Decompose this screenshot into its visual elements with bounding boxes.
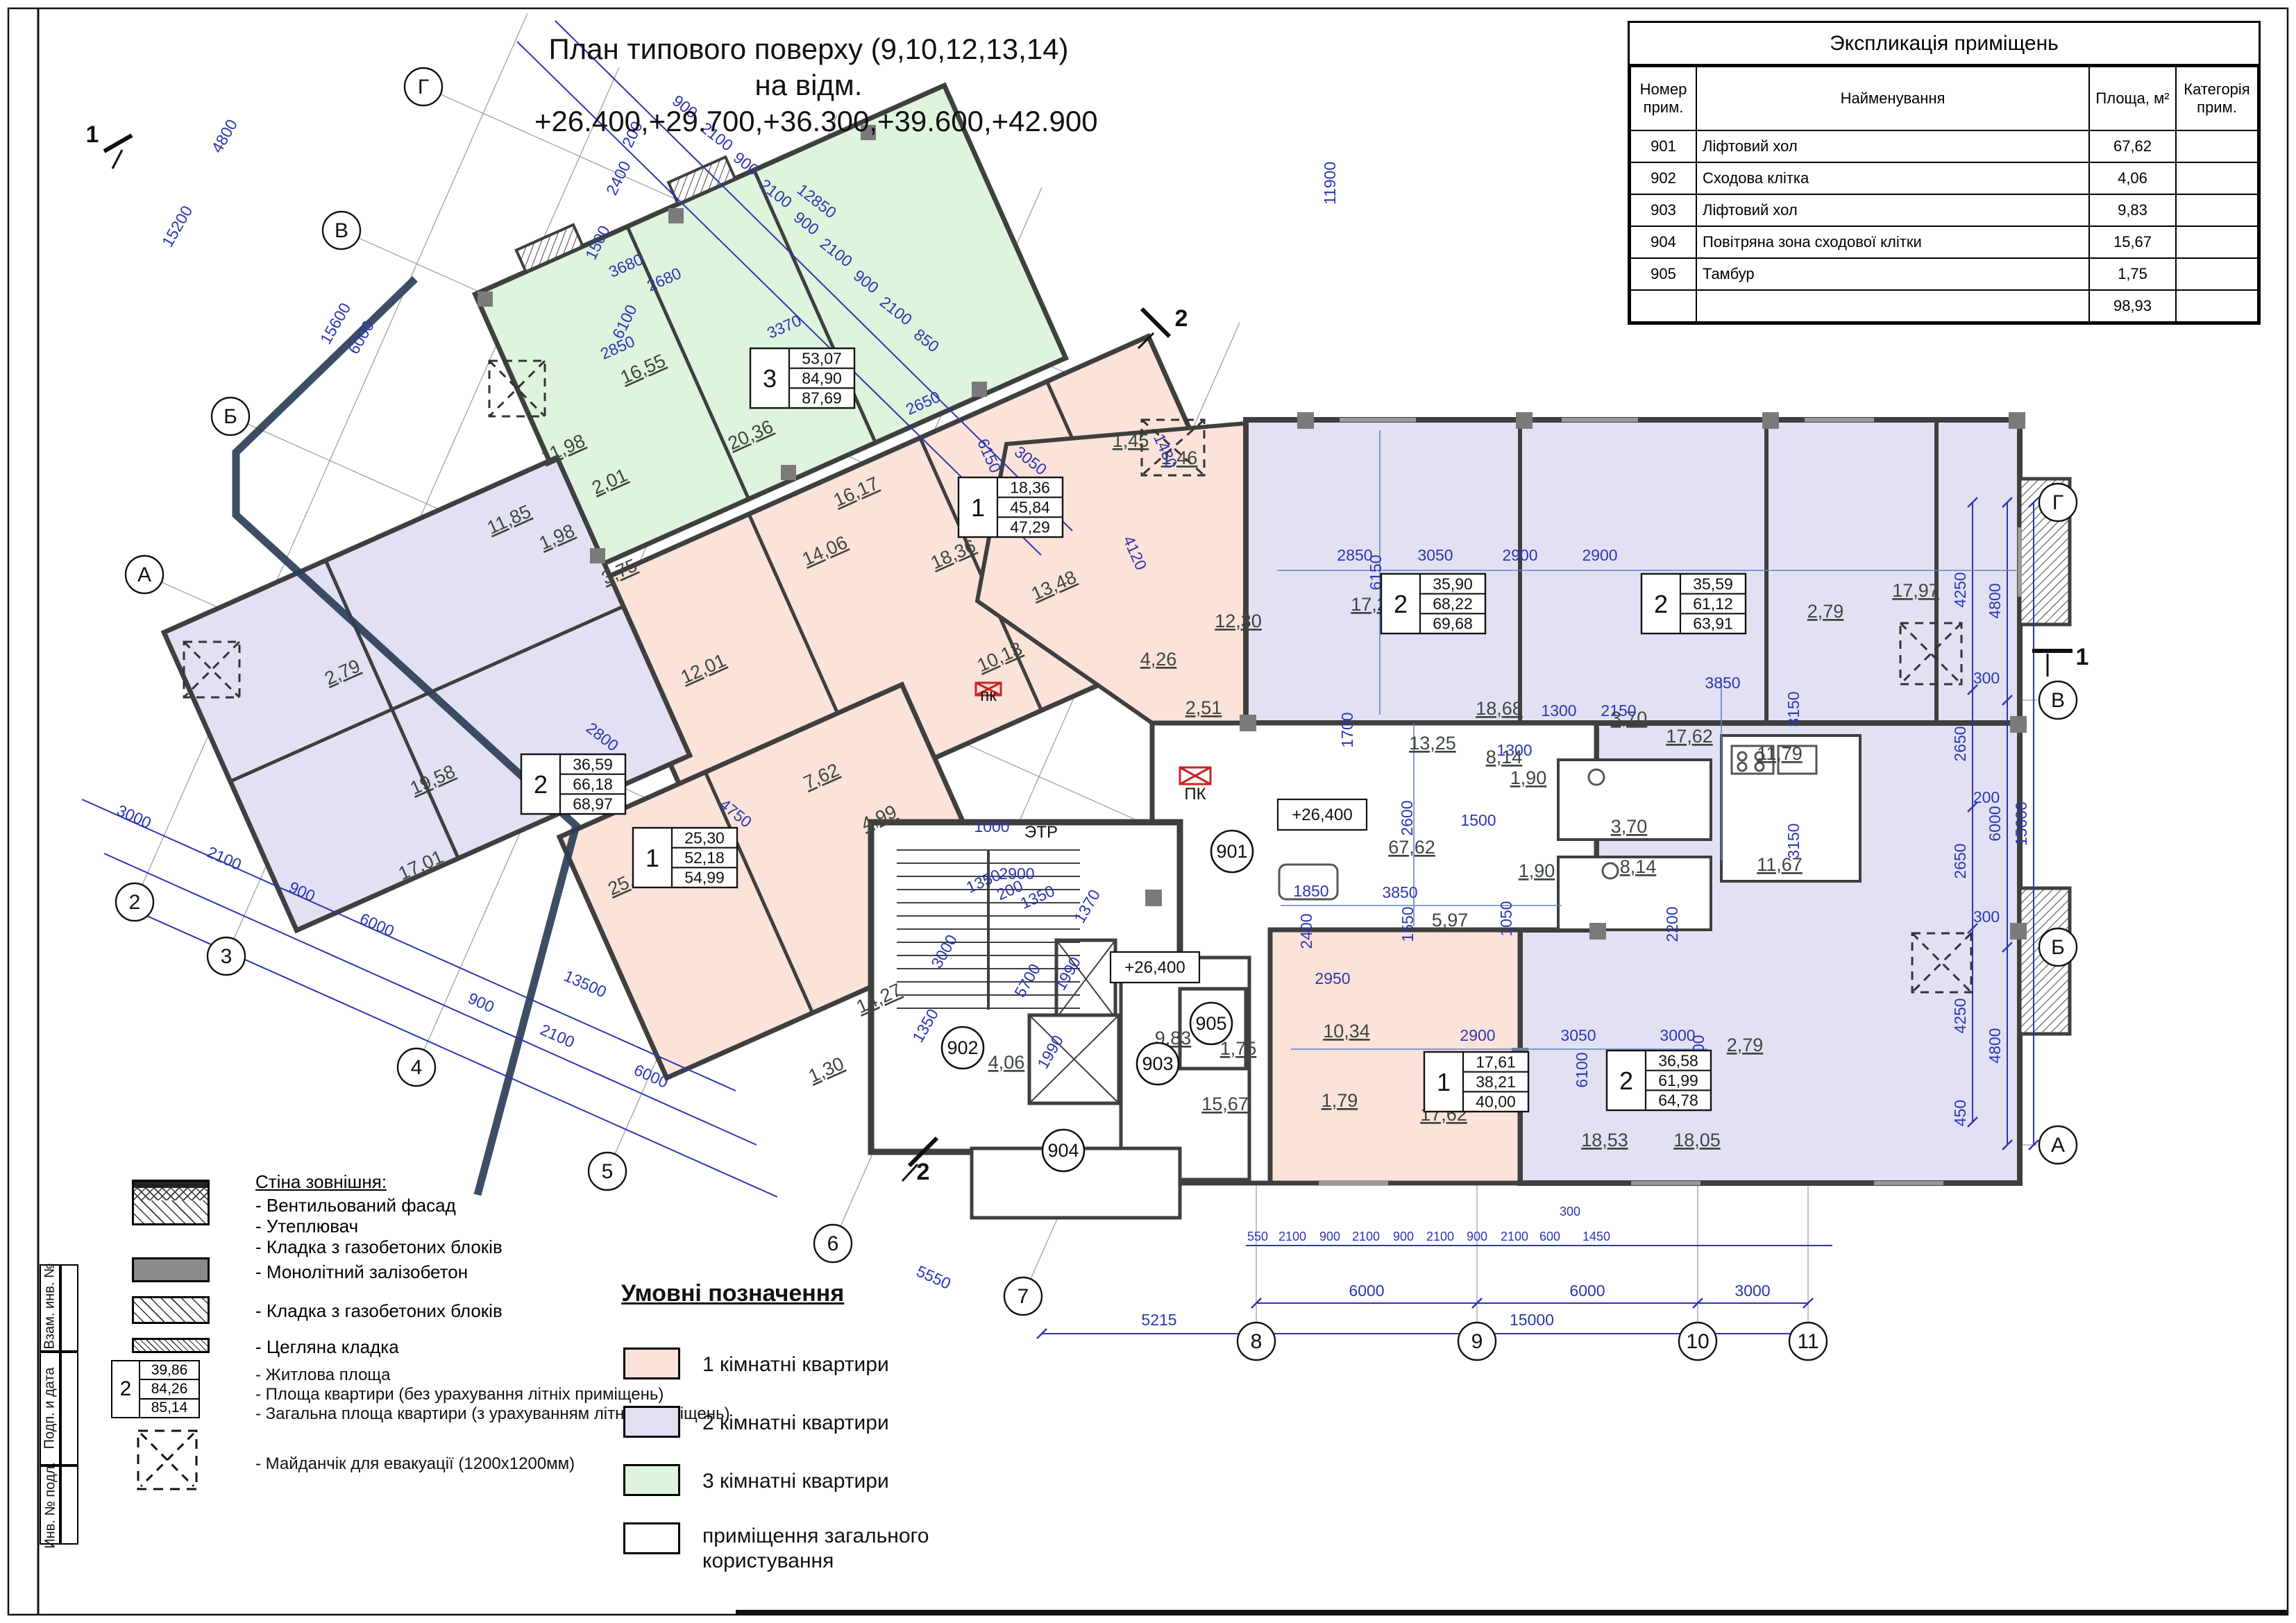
dimension-label: 4800 — [208, 116, 241, 155]
svg-text:64,78: 64,78 — [1658, 1091, 1698, 1110]
svg-text:+26,400: +26,400 — [1292, 806, 1352, 824]
dimension-label: 600 — [1539, 1230, 1560, 1243]
elevation-mark: +26,400 — [1111, 952, 1199, 983]
dimension-label: 1850 — [1293, 882, 1328, 900]
room-area-label: 3,70 — [1611, 816, 1648, 837]
table-header-row: Номер прим. Найменування Площа, м² Катег… — [1630, 67, 2258, 130]
svg-text:Б: Б — [2051, 936, 2065, 959]
dimension-label: 3850 — [1382, 883, 1417, 901]
dimension-label: 900 — [1393, 1230, 1414, 1243]
dimension-label: 550 — [1247, 1230, 1268, 1243]
room-name: Ліфтовий хол — [1696, 194, 2089, 226]
plan-text-label: ЭТР — [1024, 823, 1058, 842]
dimension-label: 2100 — [1352, 1230, 1380, 1243]
col-area: Площа, м² — [2089, 67, 2176, 130]
room-category — [2176, 226, 2258, 258]
dimension-label: 2400 — [1297, 913, 1315, 949]
svg-text:68,97: 68,97 — [573, 795, 613, 813]
table-row: 904Повітряна зона сходової клітки15,67 — [1630, 226, 2258, 258]
dimension-label: 2950 — [1315, 969, 1350, 987]
room-category — [2176, 162, 2258, 194]
dimension-label: 15600 — [2012, 801, 2030, 846]
apartment-tag: 236,5966,1868,97 — [521, 754, 625, 814]
dimension-label: 2900 — [999, 865, 1034, 883]
drawing-title: План типового поверху (9,10,12,13,14) на… — [534, 31, 1083, 139]
svg-text:А: А — [2051, 1134, 2065, 1157]
dimension-label: 15000 — [1510, 1311, 1554, 1329]
dimension-label: 1450 — [1582, 1230, 1610, 1243]
area-tag-sample: 2 39,86 84,26 85,14 — [111, 1360, 200, 1418]
legend-item: 1 кімнатні квартири — [702, 1353, 889, 1377]
svg-text:10: 10 — [1686, 1330, 1709, 1353]
room-area-label: 2,51 — [1185, 697, 1222, 718]
room-area-label: 1,90 — [1510, 767, 1547, 788]
dimension-label: 4250 — [1951, 998, 1969, 1033]
table-total-row: 98,93 — [1630, 290, 2258, 322]
apartment-tag: 353,0784,9087,69 — [750, 348, 854, 408]
room-area-label: 13,25 — [1409, 733, 1456, 754]
swatch-1room — [623, 1348, 680, 1379]
dimension-label: 2100 — [1426, 1230, 1454, 1243]
dimension-label: 2200 — [1663, 906, 1681, 942]
svg-text:8: 8 — [1251, 1330, 1263, 1353]
room-area-label: 11,79 — [1757, 743, 1803, 764]
svg-text:61,12: 61,12 — [1693, 595, 1733, 613]
apartment-tag: 118,3645,8447,29 — [959, 477, 1063, 537]
axis-bubble: Г — [405, 68, 442, 105]
dimension-label: 3050 — [1560, 1026, 1596, 1044]
plan-text-label: пк — [980, 686, 997, 705]
section-number: 2 — [1175, 305, 1188, 332]
room-area-label: 10,34 — [1323, 1021, 1370, 1042]
axis-bubble: 8 — [1238, 1323, 1275, 1360]
dimension-label: 2100 — [538, 1020, 577, 1051]
axis-bubble: А — [126, 556, 163, 593]
dimension-label: 2150 — [1601, 702, 1636, 720]
svg-text:18,36: 18,36 — [1010, 478, 1050, 496]
swatch-2room — [623, 1406, 680, 1438]
legend-item: - Площа квартири (без урахування літніх … — [255, 1385, 664, 1404]
svg-text:901: 901 — [1216, 841, 1247, 862]
room-area-label: 2,79 — [1727, 1035, 1764, 1055]
axis-bubble: 9 — [1458, 1323, 1496, 1360]
table-row: 903Ліфтовий хол9,83 — [1630, 194, 2258, 226]
apt-value-sample: 84,26 — [140, 1380, 199, 1399]
dimension-label: 6000 — [1569, 1282, 1605, 1300]
svg-text:84,90: 84,90 — [802, 369, 842, 387]
dimension-label: 1000 — [974, 817, 1009, 835]
blocks-swatch — [132, 1296, 210, 1324]
facade-wall-swatch — [132, 1180, 210, 1225]
axis-bubble: Б — [2039, 928, 2077, 966]
room-id: 902 — [1630, 162, 1696, 194]
dimension-label: 5550 — [914, 1261, 954, 1293]
dimension-label: 2650 — [1951, 726, 1969, 761]
dimension-label: 300 — [1973, 908, 2000, 926]
stamp-label: Подп. и дата — [42, 1353, 58, 1464]
room-area-label: 1,90 — [1519, 860, 1555, 881]
room-area-label: 1,30 — [805, 1053, 847, 1087]
dimension-label: 200 — [1973, 788, 2000, 806]
svg-text:7: 7 — [1018, 1285, 1029, 1308]
svg-text:2: 2 — [1394, 590, 1408, 618]
col-name: Найменування — [1696, 67, 2089, 130]
svg-text:2: 2 — [1654, 590, 1668, 618]
room-category — [2176, 130, 2258, 162]
apartment-tag: 235,5961,1263,91 — [1641, 574, 1746, 634]
wall-legend-title: Стіна зовнішня: — [255, 1171, 387, 1193]
dimension-label: 6000 — [357, 909, 397, 940]
svg-text:61,99: 61,99 — [1658, 1071, 1698, 1089]
svg-text:2: 2 — [129, 891, 141, 914]
dimension-label: 1500 — [1460, 811, 1496, 829]
brick-swatch — [132, 1338, 210, 1353]
svg-text:3: 3 — [763, 364, 777, 393]
legend-item: - Вентильований фасад — [255, 1195, 456, 1216]
room-area: 4,06 — [2089, 162, 2176, 194]
dimension-label: 6000 — [1349, 1282, 1384, 1300]
room-area-label: 18,68 — [1476, 698, 1523, 719]
room-area-label: 18,53 — [1581, 1130, 1628, 1150]
svg-text:36,58: 36,58 — [1658, 1051, 1698, 1069]
dimension-label: 2900 — [1460, 1026, 1495, 1044]
legend-item: - Монолітний залізобетон — [255, 1261, 468, 1283]
dimension-label: 900 — [1319, 1230, 1340, 1243]
svg-text:В: В — [2051, 689, 2065, 712]
svg-text:1: 1 — [971, 493, 985, 522]
room-name: Тамбур — [1696, 258, 2089, 290]
svg-text:5: 5 — [602, 1160, 614, 1183]
axis-bubble: В — [2039, 681, 2077, 719]
axis-bubble: 2 — [116, 883, 153, 921]
col-number: Номер прим. — [1630, 67, 1696, 130]
svg-text:4: 4 — [411, 1056, 423, 1079]
svg-text:68,22: 68,22 — [1433, 595, 1473, 613]
dimension-label: 11900 — [1321, 162, 1339, 205]
svg-text:66,18: 66,18 — [573, 775, 613, 793]
dimension-label: 300 — [1560, 1205, 1580, 1218]
dimension-label: 2600 — [1398, 800, 1416, 835]
explication-title: Экспликація приміщень — [1630, 23, 2259, 66]
dimension-label: 2100 — [1501, 1230, 1528, 1243]
axis-bubble: 10 — [1679, 1323, 1716, 1360]
axis-bubble: 7 — [1004, 1277, 1042, 1315]
svg-text:63,91: 63,91 — [1693, 615, 1733, 633]
legend-item: - Кладка з газобетоних блоків — [255, 1237, 503, 1258]
room-area-label: 1,79 — [1322, 1090, 1358, 1111]
symbols-legend-title: Умовні позначення — [621, 1280, 844, 1307]
dimension-label: 2400 — [602, 158, 634, 198]
room-area-label: 4,26 — [1140, 649, 1177, 670]
stamp-label: Инв. № подл. — [43, 1461, 59, 1551]
axis-bubble: 5 — [589, 1153, 626, 1190]
dimension-label: 3000 — [115, 801, 154, 832]
dimension-label: 1050 — [1497, 901, 1515, 936]
drawing-sheet: 16,5520,3611,982,0111,851,983,7516,1714,… — [0, 0, 2296, 1623]
axis-bubble: В — [323, 212, 360, 249]
dimension-label: 3000 — [1734, 1282, 1770, 1300]
section-number: 1 — [86, 121, 99, 148]
title-line-2: на відм. +26.400,+29.700,+36.300,+39.600… — [534, 67, 1083, 139]
axis-bubble: Г — [2039, 484, 2077, 521]
room-area-label: 18,05 — [1673, 1130, 1721, 1150]
room-id: 901 — [1630, 130, 1696, 162]
apartment-tag: 236,5861,9964,78 — [1607, 1051, 1711, 1110]
legend-item: - Кладка з газобетоних блоків — [255, 1300, 503, 1322]
legend-item: приміщення загального користування — [702, 1524, 1001, 1574]
dimension-label: 2100 — [205, 842, 244, 874]
elevation-mark: +26,400 — [1278, 799, 1367, 830]
svg-text:45,84: 45,84 — [1010, 498, 1050, 516]
svg-text:53,07: 53,07 — [802, 349, 842, 367]
axis-bubble: 11 — [1789, 1323, 1827, 1360]
dimension-label: 4800 — [1986, 1028, 2004, 1063]
room-area-label: 5,97 — [1432, 910, 1469, 931]
stamp-label: Взам. инв. № — [42, 1266, 58, 1350]
svg-text:38,21: 38,21 — [1476, 1073, 1516, 1091]
room-name: Ліфтовий хол — [1696, 130, 2089, 162]
apt-type-sample: 2 — [112, 1361, 140, 1417]
swatch-3room — [623, 1464, 680, 1496]
legend-item: - Майданчік для евакуації (1200х1200мм) — [255, 1454, 575, 1474]
svg-text:905: 905 — [1195, 1013, 1226, 1034]
col-category: Категорія прим. — [2176, 67, 2258, 130]
room-area-label: 2,79 — [1807, 601, 1844, 622]
svg-text:3: 3 — [221, 945, 233, 968]
evac-swatch — [135, 1428, 199, 1492]
axis-bubble: 6 — [814, 1225, 852, 1262]
svg-text:9: 9 — [1471, 1330, 1483, 1353]
svg-text:40,00: 40,00 — [1476, 1093, 1516, 1111]
svg-text:Г: Г — [418, 76, 429, 99]
total-area: 98,93 — [2089, 290, 2176, 322]
room-area-label: 12,30 — [1215, 611, 1262, 631]
apt-value-sample: 85,14 — [140, 1400, 199, 1417]
room-number: 902 — [942, 1027, 984, 1069]
dimension-label: 1300 — [1496, 741, 1532, 759]
room-id: 903 — [1630, 194, 1696, 226]
dimension-label: 900 — [1467, 1230, 1487, 1243]
dimension-label: 1550 — [1399, 906, 1417, 942]
section-number: 2 — [917, 1159, 930, 1185]
dimension-label: 300 — [1973, 669, 2000, 687]
room-area-label: 67,62 — [1388, 837, 1435, 858]
svg-text:+26,400: +26,400 — [1124, 958, 1185, 977]
svg-text:2: 2 — [534, 770, 548, 799]
svg-text:2: 2 — [1619, 1067, 1633, 1095]
svg-text:11: 11 — [1797, 1330, 1818, 1353]
dimension-label: 3050 — [1417, 546, 1453, 564]
svg-text:36,59: 36,59 — [573, 755, 613, 773]
apartment-tag: 125,3052,1854,99 — [633, 828, 737, 887]
dimension-label: 1300 — [1541, 702, 1576, 720]
room-id: 904 — [1630, 226, 1696, 258]
room-number: 901 — [1211, 831, 1253, 872]
room-area: 9,83 — [2089, 194, 2176, 226]
room-area-label: 17,62 — [1666, 726, 1713, 747]
svg-text:904: 904 — [1047, 1140, 1079, 1161]
table-row: 902Сходова клітка4,06 — [1630, 162, 2258, 194]
section-number: 1 — [2076, 644, 2089, 670]
svg-text:35,90: 35,90 — [1433, 575, 1473, 593]
svg-text:А: А — [137, 563, 151, 586]
room-area-label: 8,14 — [1620, 856, 1657, 877]
room-area-label: 17,97 — [1892, 580, 1939, 601]
svg-text:52,18: 52,18 — [684, 849, 725, 867]
dimension-label: 3150 — [1784, 823, 1803, 858]
svg-text:Б: Б — [223, 405, 237, 428]
legend-item: 3 кімнатні квартири — [702, 1470, 889, 1493]
room-name: Повітряна зона сходової клітки — [1696, 226, 2089, 258]
room-category — [2176, 194, 2258, 226]
room-area-label: 1,75 — [1220, 1038, 1257, 1059]
axis-bubble: А — [2039, 1126, 2077, 1164]
room-category — [2176, 258, 2258, 290]
dimension-label: 1700 — [1338, 712, 1356, 747]
dimension-label: 2100 — [1278, 1230, 1306, 1243]
room-id: 905 — [1630, 258, 1696, 290]
svg-text:47,29: 47,29 — [1010, 518, 1050, 536]
dimension-label: 450 — [1951, 1100, 1969, 1126]
swatch-common — [623, 1522, 680, 1554]
svg-text:25,30: 25,30 — [684, 829, 725, 847]
dimension-label: 900 — [465, 989, 497, 1016]
dimension-label: 6100 — [1573, 1052, 1591, 1087]
room-area-label: 15,67 — [1201, 1094, 1249, 1114]
dimension-label: 2650 — [1951, 843, 1969, 878]
dimension-label: 3850 — [1705, 674, 1740, 692]
dimension-label: 13500 — [562, 967, 609, 1001]
plan-text-label: ПК — [1184, 785, 1206, 804]
dimension-label: 3150 — [1784, 691, 1803, 726]
svg-text:902: 902 — [947, 1037, 978, 1058]
dimension-label: 2900 — [1582, 546, 1617, 564]
room-area: 67,62 — [2089, 130, 2176, 162]
room-name: Сходова клітка — [1696, 162, 2089, 194]
dimension-label: 6000 — [1986, 806, 2004, 841]
dimension-label: 4800 — [1986, 583, 2004, 618]
svg-text:35,59: 35,59 — [1693, 575, 1733, 593]
room-number: 904 — [1043, 1130, 1084, 1171]
axis-bubble: Б — [212, 398, 249, 435]
legend-item: - Житлова площа — [255, 1366, 391, 1385]
svg-text:54,99: 54,99 — [684, 869, 725, 887]
svg-text:В: В — [335, 219, 348, 242]
legend-item: 2 кімнатні квартири — [702, 1411, 889, 1435]
monolith-swatch — [132, 1257, 210, 1282]
svg-text:903: 903 — [1142, 1053, 1173, 1074]
room-area-label: 1,45 — [1113, 430, 1149, 451]
dimension-label: 15200 — [158, 203, 196, 250]
explication-table: Экспликація приміщень Номер прим. Наймен… — [1628, 21, 2261, 325]
room-area-label: 4,06 — [988, 1052, 1025, 1073]
apartment-tag: 235,9068,2269,68 — [1381, 574, 1485, 634]
svg-text:1: 1 — [1437, 1068, 1451, 1096]
axis-bubble: 3 — [208, 937, 245, 975]
legend-item: - Утеплювач — [255, 1216, 358, 1237]
svg-text:17,61: 17,61 — [1476, 1053, 1516, 1071]
svg-text:1: 1 — [645, 844, 659, 872]
room-number: 905 — [1190, 1003, 1232, 1044]
room-number: 903 — [1137, 1043, 1179, 1085]
axis-bubble: 4 — [398, 1048, 435, 1086]
table-row: 905Тамбур1,75 — [1630, 258, 2258, 290]
dimension-label: 2900 — [1502, 546, 1537, 564]
svg-text:Г: Г — [2052, 491, 2063, 514]
dimension-label: 5215 — [1141, 1311, 1176, 1329]
svg-text:69,68: 69,68 — [1433, 615, 1473, 633]
room-area: 15,67 — [2089, 226, 2176, 258]
dimension-label: 4250 — [1951, 572, 1969, 607]
apt-value-sample: 39,86 — [140, 1361, 199, 1380]
legend-item: - Цегляна кладка — [255, 1336, 399, 1358]
apartment-tag: 117,6138,2140,00 — [1424, 1052, 1528, 1112]
table-row: 901Ліфтовий хол67,62 — [1630, 130, 2258, 162]
room-area: 1,75 — [2089, 258, 2176, 290]
title-line-1: План типового поверху (9,10,12,13,14) — [534, 31, 1083, 67]
svg-text:87,69: 87,69 — [802, 389, 842, 407]
svg-text:6: 6 — [827, 1232, 839, 1255]
